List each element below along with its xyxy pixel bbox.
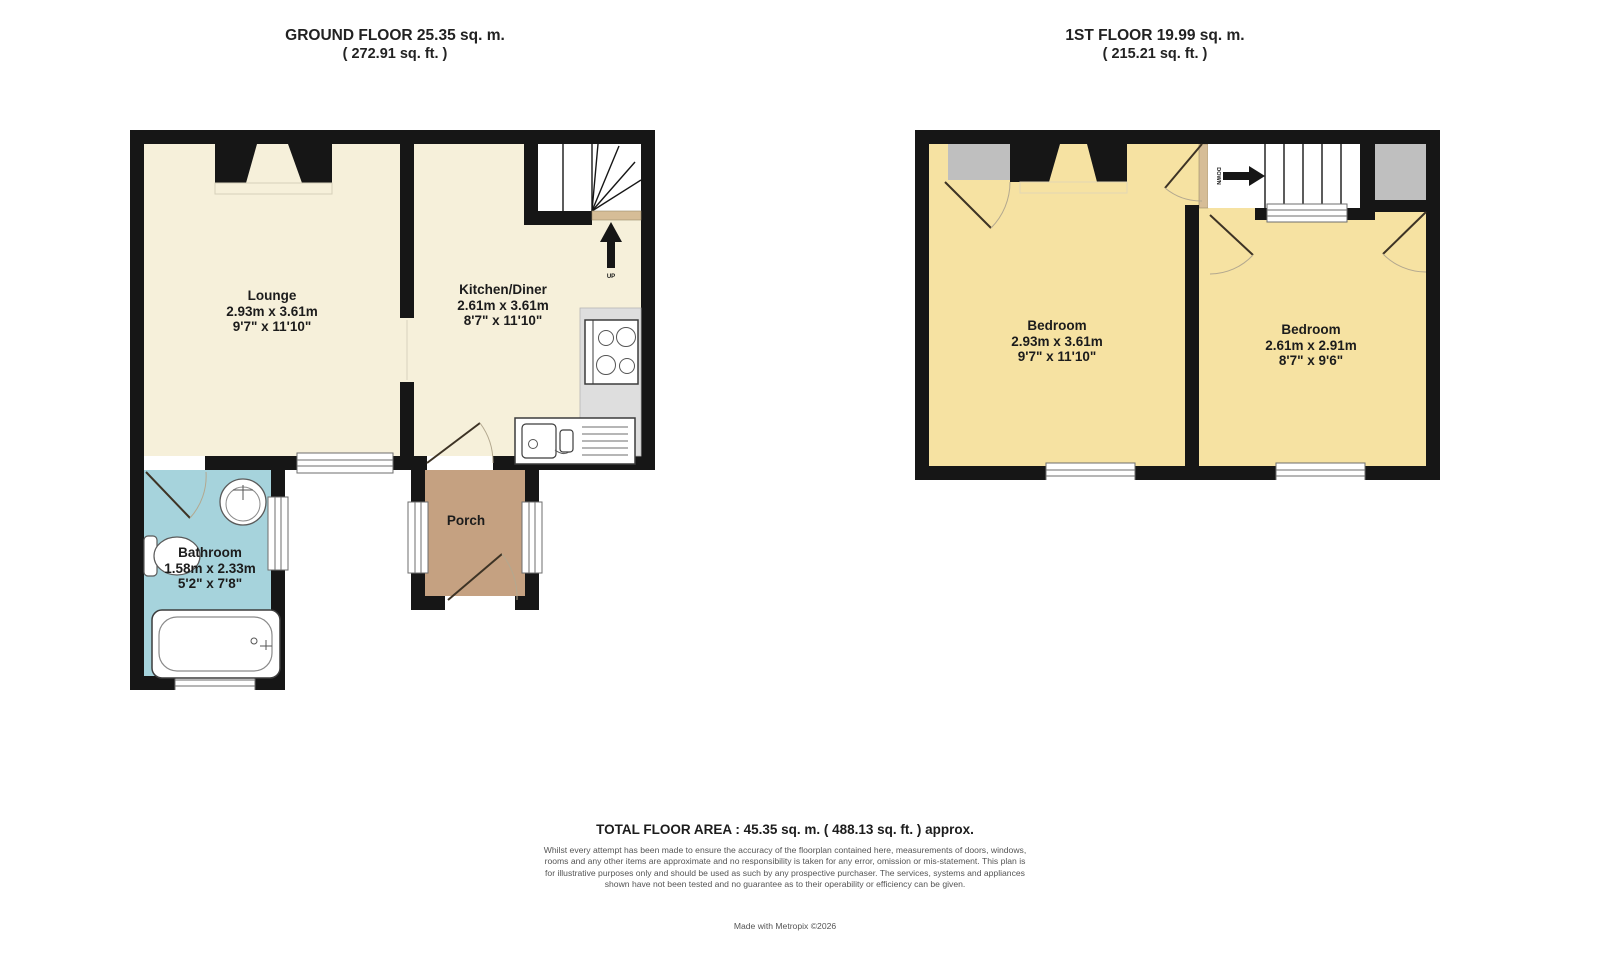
- kitchen-label: Kitchen/Diner 2.61m x 3.61m 8'7" x 11'10…: [457, 282, 549, 329]
- porch-left-window: [408, 502, 428, 573]
- landing-threshold: [1199, 144, 1208, 208]
- stairs-up: [538, 144, 641, 220]
- bedroom1-metric: 2.93m x 3.61m: [1011, 334, 1103, 350]
- porch-name: Porch: [447, 513, 485, 529]
- bedroom1-name: Bedroom: [1011, 318, 1103, 334]
- bedroom2-label: Bedroom 2.61m x 2.91m 8'7" x 9'6": [1265, 322, 1357, 369]
- bathroom-imperial: 5'2" x 7'8": [164, 576, 256, 592]
- first-floor-title-line1: 1ST FLOOR 19.99 sq. m.: [975, 26, 1335, 45]
- ground-floor-title-line2: ( 272.91 sq. ft. ): [215, 45, 575, 64]
- first-floor-title: 1ST FLOOR 19.99 sq. m. ( 215.21 sq. ft. …: [975, 26, 1335, 64]
- up-label: UP: [607, 274, 615, 280]
- metropix-credit: Made with Metropix ©2026: [734, 921, 836, 931]
- total-floor-area: TOTAL FLOOR AREA : 45.35 sq. m. ( 488.13…: [596, 822, 974, 837]
- bedroom1-window: [1046, 463, 1135, 480]
- disclaimer-text: Whilst every attempt has been made to en…: [539, 845, 1031, 891]
- bathroom-name: Bathroom: [164, 545, 256, 561]
- bedroom1-imperial: 9'7" x 11'10": [1011, 349, 1103, 365]
- stair-landing-edge: [592, 211, 641, 220]
- kitchen-metric: 2.61m x 3.61m: [457, 298, 549, 314]
- bathroom-label: Bathroom 1.58m x 2.33m 5'2" x 7'8": [164, 545, 256, 592]
- ground-floor-plan: UP: [130, 130, 655, 690]
- kitchen-imperial: 8'7" x 11'10": [457, 313, 549, 329]
- basin: [220, 479, 266, 525]
- ground-floor-title-line1: GROUND FLOOR 25.35 sq. m.: [215, 26, 575, 45]
- cooktop: [585, 320, 638, 384]
- ground-floor-title: GROUND FLOOR 25.35 sq. m. ( 272.91 sq. f…: [215, 26, 575, 64]
- bathroom-metric: 1.58m x 2.33m: [164, 561, 256, 577]
- porch-right-window: [522, 502, 542, 573]
- lounge-metric: 2.93m x 3.61m: [226, 304, 318, 320]
- bathtub: [152, 610, 280, 678]
- down-label: DOWN: [1215, 167, 1221, 184]
- kitchen-sink: [515, 418, 635, 464]
- bedroom2-imperial: 8'7" x 9'6": [1265, 353, 1357, 369]
- bedroom2-name: Bedroom: [1265, 322, 1357, 338]
- lounge-window: [297, 453, 393, 473]
- first-floor-plan: DOWN: [915, 130, 1440, 480]
- bedroom1-label: Bedroom 2.93m x 3.61m 9'7" x 11'10": [1011, 318, 1103, 365]
- kitchen-name: Kitchen/Diner: [457, 282, 549, 298]
- bedroom2-cupboard: [1375, 144, 1426, 200]
- floorplan-canvas: GROUND FLOOR 25.35 sq. m. ( 272.91 sq. f…: [0, 0, 1600, 965]
- bedroom2-window: [1276, 463, 1365, 480]
- porch-label: Porch: [447, 513, 485, 529]
- lounge-name: Lounge: [226, 288, 318, 304]
- bathroom-side-window: [268, 497, 288, 570]
- stair-balustrade: [1267, 204, 1347, 222]
- lounge-label: Lounge 2.93m x 3.61m 9'7" x 11'10": [226, 288, 318, 335]
- bedroom2-metric: 2.61m x 2.91m: [1265, 338, 1357, 354]
- bedroom1-cupboard: [948, 144, 1010, 180]
- first-floor-title-line2: ( 215.21 sq. ft. ): [975, 45, 1335, 64]
- lounge-imperial: 9'7" x 11'10": [226, 319, 318, 335]
